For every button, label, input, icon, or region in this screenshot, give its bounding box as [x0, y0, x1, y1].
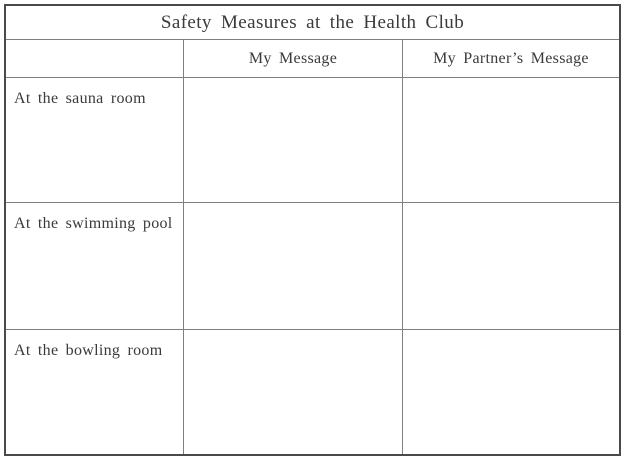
my-message-cell-sauna-room	[183, 78, 402, 203]
row-label-swimming-pool: At the swimming pool	[6, 203, 183, 330]
partner-message-cell-sauna-room	[402, 78, 619, 203]
safety-measures-table: Safety Measures at the Health Club My Me…	[4, 4, 621, 456]
my-message-cell-bowling-room	[183, 330, 402, 454]
partner-message-cell-swimming-pool	[402, 203, 619, 330]
row-label-bowling-room: At the bowling room	[6, 330, 183, 454]
table-title: Safety Measures at the Health Club	[6, 6, 619, 40]
header-cell-my-message: My Message	[183, 40, 402, 78]
row-label-sauna-room: At the sauna room	[6, 78, 183, 203]
partner-message-cell-bowling-room	[402, 330, 619, 454]
worksheet-page: Safety Measures at the Health Club My Me…	[0, 0, 626, 461]
header-cell-row-labels	[6, 40, 183, 78]
my-message-cell-swimming-pool	[183, 203, 402, 330]
header-cell-partner-message: My Partner’s Message	[402, 40, 619, 78]
